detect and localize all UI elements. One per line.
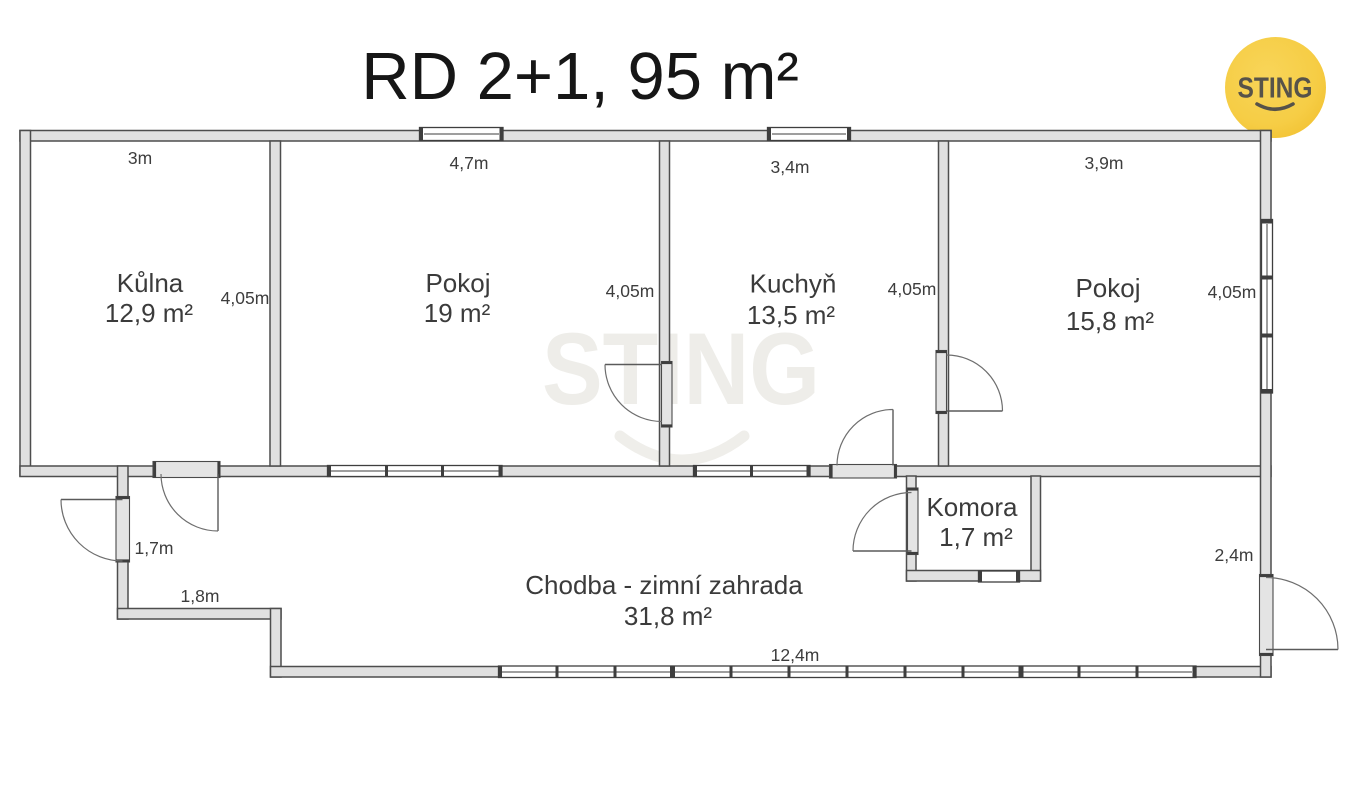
svg-text:Pokoj: Pokoj [425, 268, 490, 298]
svg-text:3,4m: 3,4m [771, 157, 810, 177]
svg-text:12,4m: 12,4m [771, 645, 820, 665]
svg-text:3,9m: 3,9m [1085, 153, 1124, 173]
svg-text:4,05m: 4,05m [1208, 282, 1257, 302]
svg-text:15,8 m²: 15,8 m² [1066, 306, 1154, 336]
svg-text:Kuchyň: Kuchyň [750, 269, 837, 299]
svg-text:RD 2+1, 95 m²: RD 2+1, 95 m² [361, 39, 799, 114]
svg-text:13,5 m²: 13,5 m² [747, 300, 835, 330]
svg-text:Kůlna: Kůlna [117, 268, 184, 298]
svg-text:19 m²: 19 m² [424, 298, 491, 328]
svg-text:4,7m: 4,7m [450, 153, 489, 173]
svg-text:3m: 3m [128, 148, 152, 168]
svg-text:12,9 m²: 12,9 m² [105, 298, 193, 328]
svg-text:Komora: Komora [926, 492, 1018, 522]
svg-text:1,8m: 1,8m [181, 586, 220, 606]
svg-text:1,7 m²: 1,7 m² [939, 522, 1013, 552]
svg-text:1,7m: 1,7m [135, 538, 174, 558]
svg-text:Chodba - zimní zahrada: Chodba - zimní zahrada [525, 570, 803, 600]
svg-text:4,05m: 4,05m [888, 279, 937, 299]
svg-text:31,8 m²: 31,8 m² [624, 601, 712, 631]
svg-text:4,05m: 4,05m [221, 288, 270, 308]
svg-text:STING: STING [1238, 73, 1313, 105]
svg-text:2,4m: 2,4m [1215, 545, 1254, 565]
svg-text:Pokoj: Pokoj [1075, 273, 1140, 303]
svg-text:4,05m: 4,05m [606, 281, 655, 301]
